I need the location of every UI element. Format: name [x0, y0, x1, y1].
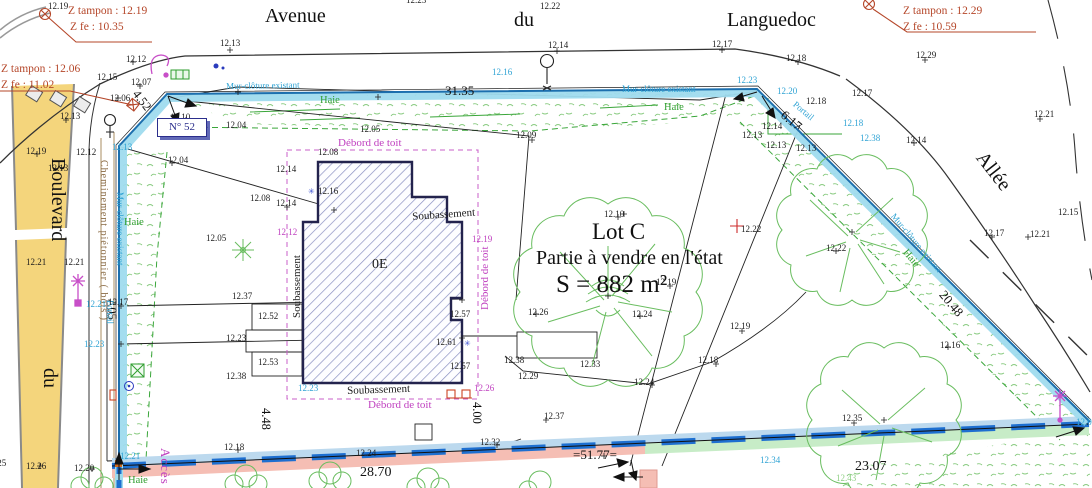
map-label: 12.07: [131, 78, 151, 87]
map-label: 12.26: [528, 308, 548, 317]
map-label: 12.18: [224, 443, 244, 452]
map-label: Haie: [128, 476, 148, 487]
map-label: Mur-clôture existant: [115, 192, 124, 266]
map-label: 12.22: [826, 244, 846, 253]
map-label: 12.19: [472, 235, 492, 244]
map-label: S = 882 m²: [556, 272, 667, 297]
map-label: Cheminement piétonnier ( bois ): [98, 160, 108, 321]
map-label: Z fe : 10.35: [70, 22, 124, 34]
map-label: 12.13: [48, 164, 68, 173]
map-label: 12.33: [580, 360, 600, 369]
map-label: Débord de toit: [338, 138, 402, 149]
map-label: 12.21: [64, 258, 84, 267]
map-label: Z tampon : 12.06: [1, 64, 80, 76]
map-label: 12.24: [356, 449, 376, 458]
map-label: 12.04: [168, 156, 188, 165]
map-label: 12.04: [226, 121, 246, 130]
map-label: 12.12: [76, 148, 96, 157]
map-label: 12.17: [852, 89, 872, 98]
map-label: 12.23: [226, 334, 246, 343]
map-label: 12.13: [60, 112, 80, 121]
map-label: 12.23: [84, 340, 104, 349]
map-label: Allée: [972, 148, 1014, 194]
map-label: 12.14: [276, 199, 296, 208]
map-label: Partie à vendre en l'état: [536, 248, 723, 268]
map-label: 12.09: [516, 131, 536, 140]
map-label: 12.37: [232, 292, 252, 301]
map-label: 12.20: [74, 464, 94, 473]
map-label: 12.05: [206, 234, 226, 243]
map-label: 12.13: [766, 141, 786, 150]
map-label: Soubassement: [292, 255, 303, 318]
map-label: 12.14: [906, 136, 926, 145]
map-label: 12.24: [632, 310, 652, 319]
map-label: 12.25: [0, 459, 6, 468]
map-label: ✳: [308, 188, 315, 196]
map-label: 12.19: [656, 278, 676, 287]
map-label: 12.18: [786, 54, 806, 63]
map-label: Mur-clôture existant: [622, 85, 696, 94]
map-label: 12.14: [548, 41, 568, 50]
house-number-text: N° 52: [169, 121, 195, 133]
map-label: 12.08: [250, 194, 270, 203]
map-label: 12.0: [1076, 418, 1092, 427]
map-label: 12.43: [836, 474, 856, 483]
map-label: 12.17: [712, 40, 732, 49]
site-plan: AvenueduLanguedocBoulevardduAlléeAccès à…: [0, 0, 1092, 488]
map-label: 12.15: [97, 73, 117, 82]
map-label: 20.48: [937, 288, 966, 319]
labels-layer: AvenueduLanguedocBoulevardduAlléeAccès à…: [0, 0, 1092, 488]
map-label: 12.14: [276, 165, 296, 174]
map-label: Z tampon : 12.29: [903, 6, 982, 18]
map-label: 31.35: [445, 84, 474, 97]
map-label: Lot C: [592, 220, 645, 243]
map-label: Z fe : 10.59: [903, 22, 957, 34]
map-label: 28.70: [360, 466, 392, 480]
map-label: 12.18: [806, 97, 826, 106]
map-label: 12.21: [120, 452, 140, 461]
map-label: 12.12: [126, 55, 146, 64]
map-label: Z fe : 11.02: [1, 80, 54, 92]
map-label: 4.52: [130, 88, 153, 113]
map-label: 12.16: [940, 341, 960, 350]
map-label: 12.32: [480, 438, 500, 447]
map-label: Haie: [124, 218, 144, 229]
map-label: 12.19: [730, 322, 750, 331]
map-label: 12.29: [518, 372, 538, 381]
map-label: 12.26: [26, 462, 46, 471]
map-label: Soubassement: [412, 208, 476, 223]
map-label: 12.38: [504, 356, 524, 365]
map-label: 12.05: [360, 125, 380, 134]
map-label: 12.12: [277, 228, 297, 237]
map-label: 12.52: [258, 312, 278, 321]
map-label: 12.37: [544, 412, 564, 421]
map-label: 12.29: [916, 51, 936, 60]
map-label: 12.14: [762, 122, 782, 131]
map-label: 12.17: [108, 298, 128, 307]
map-label: 4.48: [260, 408, 273, 430]
map-label: du: [40, 368, 60, 388]
map-label: Soubassement: [347, 384, 410, 397]
map-label: 12.19: [26, 147, 46, 156]
map-label: 12.34: [760, 456, 780, 465]
map-label: 12.21: [1030, 230, 1050, 239]
map-label: Accès à: [159, 448, 172, 488]
map-label: Languedoc: [727, 10, 816, 30]
map-label: 12.26: [474, 384, 494, 393]
map-label: 12.23: [406, 0, 426, 5]
map-label: 12.21: [86, 300, 106, 309]
map-label: 12.06: [110, 94, 130, 103]
map-label: 12.08: [318, 148, 338, 157]
map-label: Avenue: [265, 6, 326, 26]
map-label: 12.35: [842, 414, 862, 423]
map-label: Débord de toit: [480, 246, 491, 310]
map-label: 12.57: [450, 362, 470, 371]
map-label: 12.17: [984, 229, 1004, 238]
house-number-plate: N° 52: [157, 118, 207, 137]
map-label: 12.22: [741, 225, 761, 234]
map-label: Haie: [320, 96, 340, 107]
map-label: 12.16: [492, 68, 512, 77]
map-label: 12.10: [604, 210, 624, 219]
map-label: 12.22: [540, 2, 560, 11]
map-label: 12.19: [48, 2, 68, 11]
map-label: 12.13: [796, 144, 816, 153]
map-label: 12.61: [436, 338, 456, 347]
map-label: =51.77=: [573, 448, 617, 461]
map-label: du: [514, 10, 534, 30]
map-label: 12.24: [634, 378, 654, 387]
map-label: ✳: [464, 340, 471, 348]
map-label: Haie: [664, 103, 684, 114]
map-label: Z tampon : 12.19: [68, 6, 147, 18]
map-label: 12.20: [777, 87, 797, 96]
map-label: 0E: [372, 258, 388, 272]
map-label: 12.21: [1034, 110, 1054, 119]
map-label: 12.13: [742, 131, 762, 140]
map-label: 4.00: [471, 402, 484, 424]
map-label: 12.16: [318, 187, 338, 196]
map-label: 12.23: [737, 76, 757, 85]
map-label: 12.53: [258, 358, 278, 367]
map-label: Mur-clôture existant: [226, 81, 300, 91]
map-label: 12.13: [112, 143, 132, 152]
map-label: 12.57: [450, 310, 470, 319]
map-label: 12.23: [298, 384, 318, 393]
map-label: 12.18: [843, 119, 863, 128]
map-label: 12.38: [860, 134, 880, 143]
map-label: 12.38: [226, 372, 246, 381]
map-label: 23.07: [855, 460, 887, 474]
map-label: Débord de toit: [368, 400, 432, 411]
map-label: 12.15: [1058, 208, 1078, 217]
map-label: 12.13: [220, 39, 240, 48]
map-label: 12.18: [698, 356, 718, 365]
map-label: 12.21: [26, 258, 46, 267]
